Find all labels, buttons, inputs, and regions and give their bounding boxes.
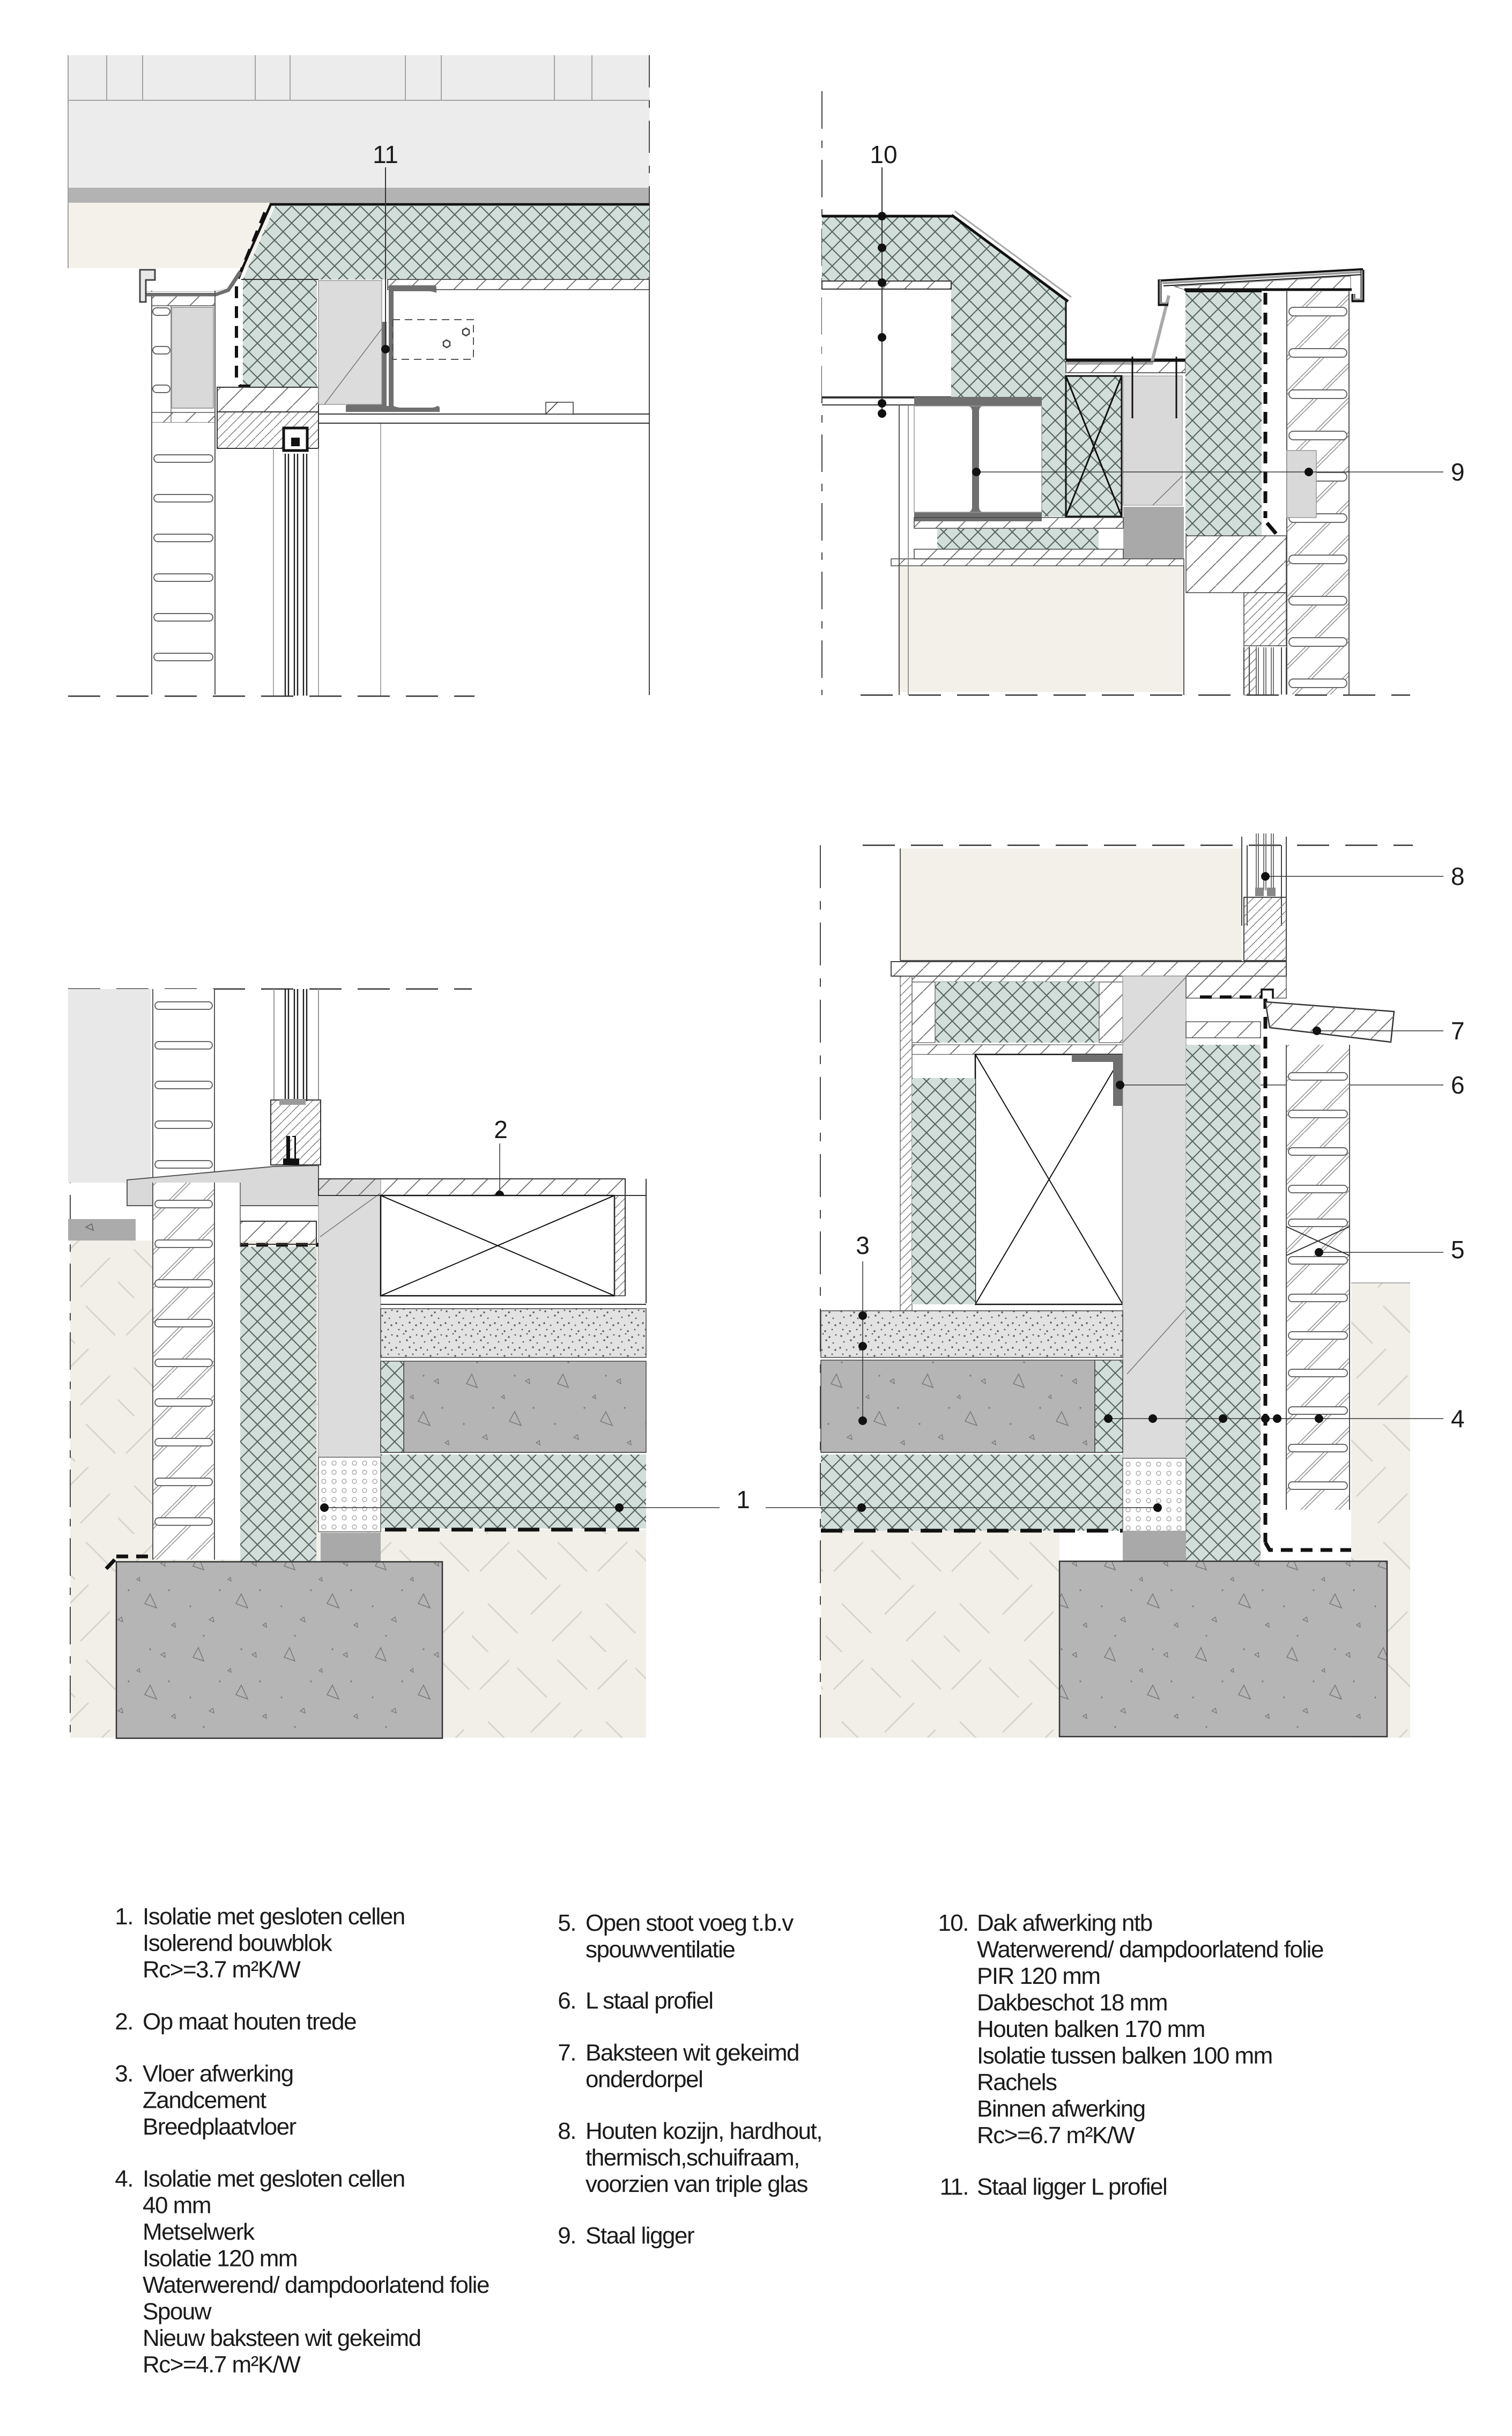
svg-text:Nieuw baksteen wit gekeimd: Nieuw baksteen wit gekeimd <box>143 2325 421 2351</box>
svg-text:thermisch,schuifraam,: thermisch,schuifraam, <box>585 2145 799 2171</box>
svg-text:Binnen afwerking: Binnen afwerking <box>977 2096 1145 2122</box>
svg-text:Dakbeschot 18 mm: Dakbeschot 18 mm <box>977 1990 1167 2016</box>
svg-text:8.: 8. <box>558 2118 576 2144</box>
svg-text:5.: 5. <box>558 1910 576 1936</box>
svg-text:9.: 9. <box>558 2223 576 2249</box>
svg-text:Isolatie tussen balken 100 mm: Isolatie tussen balken 100 mm <box>977 2043 1272 2069</box>
svg-text:7: 7 <box>1451 1017 1465 1045</box>
svg-text:3: 3 <box>856 1231 870 1259</box>
svg-text:Baksteen wit gekeimd: Baksteen wit gekeimd <box>585 2040 799 2066</box>
svg-text:Isolatie met gesloten cellen: Isolatie met gesloten cellen <box>143 2166 405 2192</box>
svg-text:Open stoot voeg t.b.v: Open stoot voeg t.b.v <box>585 1910 794 1936</box>
svg-text:Rc>=3.7 m²K/W: Rc>=3.7 m²K/W <box>143 1957 301 1983</box>
svg-text:PIR 120 mm: PIR 120 mm <box>977 1963 1100 1989</box>
svg-text:6: 6 <box>1451 1071 1465 1099</box>
svg-text:Zandcement: Zandcement <box>143 2087 266 2114</box>
svg-text:5: 5 <box>1451 1236 1465 1264</box>
svg-text:onderdorpel: onderdorpel <box>585 2066 702 2093</box>
svg-text:Rc>=6.7 m²K/W: Rc>=6.7 m²K/W <box>977 2122 1135 2149</box>
svg-text:Rachels: Rachels <box>977 2069 1057 2095</box>
svg-text:10.: 10. <box>938 1910 968 1936</box>
svg-text:Rc>=4.7 m²K/W: Rc>=4.7 m²K/W <box>143 2352 301 2378</box>
svg-text:4: 4 <box>1451 1405 1465 1433</box>
svg-text:2.: 2. <box>115 2009 133 2035</box>
svg-text:40 mm: 40 mm <box>143 2193 211 2219</box>
svg-text:Breedplaatvloer: Breedplaatvloer <box>143 2114 297 2140</box>
svg-text:7.: 7. <box>558 2040 576 2066</box>
svg-text:Op maat houten trede: Op maat houten trede <box>143 2009 356 2035</box>
svg-text:3.: 3. <box>115 2061 133 2087</box>
svg-text:spouwventilatie: spouwventilatie <box>585 1937 735 1963</box>
svg-text:Isolatie met gesloten cellen: Isolatie met gesloten cellen <box>143 1903 405 1930</box>
svg-text:Isolatie 120 mm: Isolatie 120 mm <box>143 2246 297 2272</box>
svg-text:Isolerend bouwblok: Isolerend bouwblok <box>143 1930 333 1957</box>
svg-text:10: 10 <box>870 141 897 168</box>
svg-text:9: 9 <box>1451 458 1465 486</box>
svg-text:Staal ligger: Staal ligger <box>585 2223 694 2249</box>
svg-text:Metselwerk: Metselwerk <box>143 2219 255 2245</box>
svg-text:Vloer afwerking: Vloer afwerking <box>143 2061 293 2087</box>
svg-text:11.: 11. <box>940 2174 968 2200</box>
svg-text:8: 8 <box>1451 862 1465 890</box>
svg-text:Houten balken 170 mm: Houten balken 170 mm <box>977 2016 1205 2042</box>
svg-text:Staal ligger L profiel: Staal ligger L profiel <box>977 2174 1167 2200</box>
svg-text:6.: 6. <box>558 1988 576 2014</box>
svg-text:4.: 4. <box>115 2166 133 2192</box>
svg-text:2: 2 <box>494 1116 508 1143</box>
svg-text:voorzien van triple glas: voorzien van triple glas <box>585 2171 808 2197</box>
svg-text:L staal profiel: L staal profiel <box>585 1988 713 2014</box>
svg-text:Houten kozijn, hardhout,: Houten kozijn, hardhout, <box>585 2118 822 2144</box>
svg-text:Waterwerend/ dampdoorlatend fo: Waterwerend/ dampdoorlatend folie <box>143 2272 489 2298</box>
svg-text:11: 11 <box>373 141 398 168</box>
svg-text:1: 1 <box>736 1486 750 1514</box>
svg-text:Dak afwerking ntb: Dak afwerking ntb <box>977 1910 1152 1936</box>
svg-text:1.: 1. <box>115 1903 133 1930</box>
svg-text:Spouw: Spouw <box>143 2299 212 2325</box>
svg-text:Waterwerend/ dampdoorlatend fo: Waterwerend/ dampdoorlatend folie <box>977 1937 1323 1963</box>
